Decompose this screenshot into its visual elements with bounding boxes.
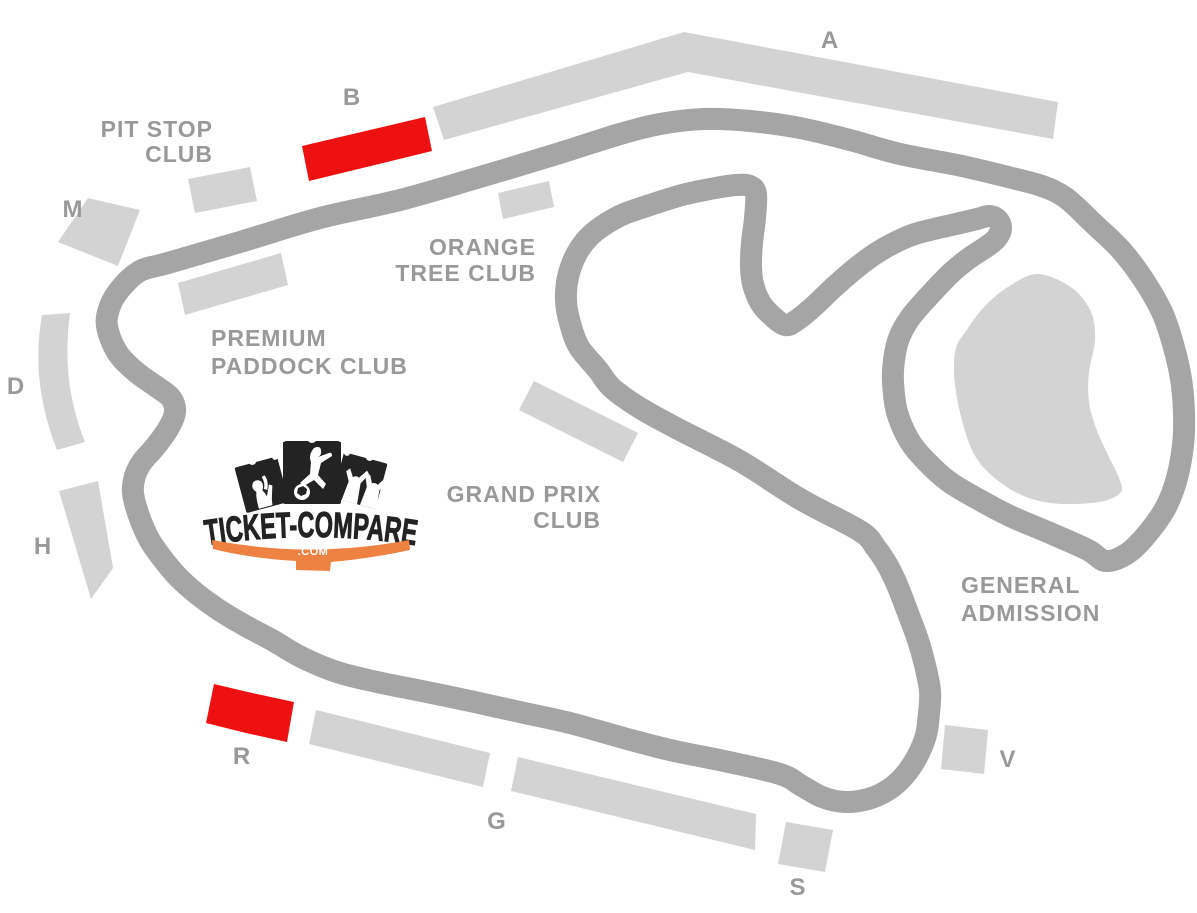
svg-text:ADMISSION: ADMISSION bbox=[961, 600, 1100, 626]
svg-text:PIT STOP: PIT STOP bbox=[101, 116, 213, 142]
svg-text:CLUB: CLUB bbox=[145, 141, 213, 167]
svg-text:TREE CLUB: TREE CLUB bbox=[395, 260, 536, 286]
svg-text:R: R bbox=[233, 743, 251, 770]
svg-text:.COM: .COM bbox=[298, 546, 329, 558]
svg-text:A: A bbox=[821, 27, 839, 54]
svg-text:V: V bbox=[999, 746, 1016, 773]
svg-text:D: D bbox=[7, 373, 25, 400]
svg-text:CLUB: CLUB bbox=[533, 507, 601, 533]
svg-text:S: S bbox=[789, 874, 806, 901]
svg-text:GENERAL: GENERAL bbox=[961, 572, 1080, 598]
svg-text:PREMIUM: PREMIUM bbox=[211, 325, 327, 351]
svg-text:H: H bbox=[34, 533, 52, 560]
svg-text:ORANGE: ORANGE bbox=[429, 234, 536, 260]
svg-text:B: B bbox=[343, 84, 361, 111]
svg-text:M: M bbox=[63, 196, 84, 223]
svg-text:GRAND PRIX: GRAND PRIX bbox=[447, 481, 601, 507]
svg-text:PADDOCK CLUB: PADDOCK CLUB bbox=[211, 353, 408, 379]
svg-text:G: G bbox=[487, 808, 507, 835]
